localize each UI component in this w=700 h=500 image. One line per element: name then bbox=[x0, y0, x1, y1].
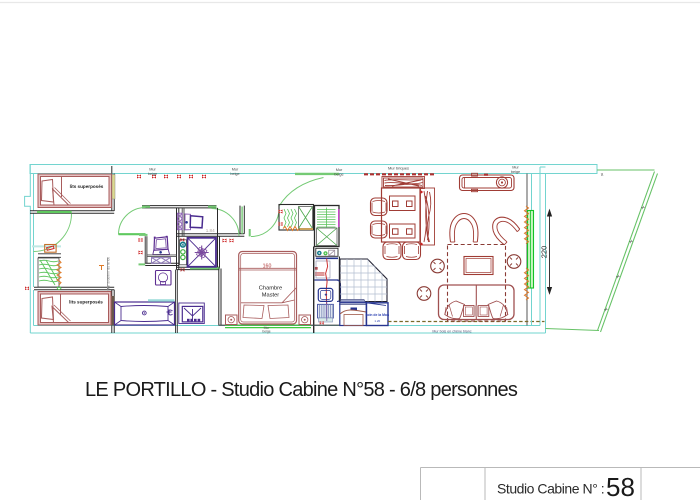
svg-text:220: 220 bbox=[540, 246, 549, 259]
svg-text:beige: beige bbox=[148, 172, 157, 176]
svg-text:beige: beige bbox=[262, 330, 270, 334]
svg-text:58: 58 bbox=[606, 472, 635, 500]
svg-text:Mur: Mur bbox=[512, 166, 519, 170]
svg-text:Chambre: Chambre bbox=[259, 286, 282, 292]
svg-text:beige: beige bbox=[230, 172, 239, 176]
svg-text:LE PORTILLO - Studio Cabine N°: LE PORTILLO - Studio Cabine N°58 - 6/8 p… bbox=[85, 379, 518, 401]
svg-text:Mur: Mur bbox=[336, 168, 343, 172]
svg-text:Studio Cabine N° :: Studio Cabine N° : bbox=[497, 481, 604, 497]
svg-text:lits superposés: lits superposés bbox=[69, 300, 103, 305]
svg-text:1.20: 1.20 bbox=[374, 319, 380, 323]
svg-text:beige: beige bbox=[511, 170, 520, 174]
svg-text:Mur bois en chêne blanc: Mur bois en chêne blanc bbox=[432, 330, 471, 334]
svg-text:Mur à définir ds le lot: Mur à définir ds le lot bbox=[107, 257, 111, 290]
svg-text:160: 160 bbox=[263, 264, 272, 270]
svg-text:Mur: Mur bbox=[149, 168, 156, 172]
svg-text:Mur briques: Mur briques bbox=[388, 166, 409, 171]
svg-text:beige: beige bbox=[334, 173, 343, 177]
svg-text:1.84: 1.84 bbox=[206, 228, 215, 233]
svg-text:Master: Master bbox=[262, 293, 279, 299]
svg-text:lits superposés: lits superposés bbox=[70, 184, 104, 189]
svg-text:coin de la Mon: coin de la Mon bbox=[366, 313, 390, 317]
svg-text:Mur: Mur bbox=[232, 168, 239, 172]
